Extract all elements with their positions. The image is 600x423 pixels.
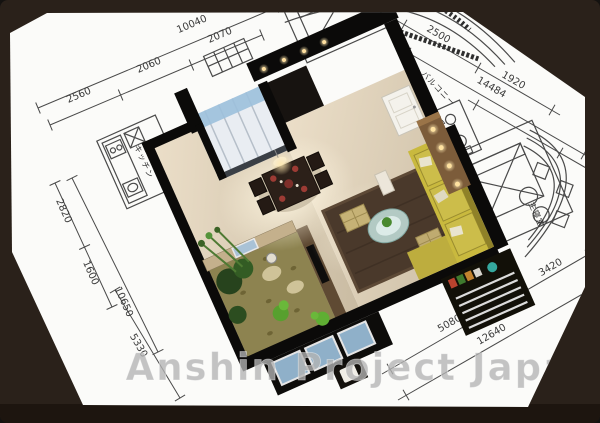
watermark-text: Anshin Project Japan — [126, 346, 599, 389]
floorplan-render-canvas: 10040 2560 2060 2070 2820 1600 10650 533… — [0, 0, 600, 423]
presentation-image: 10040 2560 2060 2070 2820 1600 10650 533… — [0, 0, 600, 423]
